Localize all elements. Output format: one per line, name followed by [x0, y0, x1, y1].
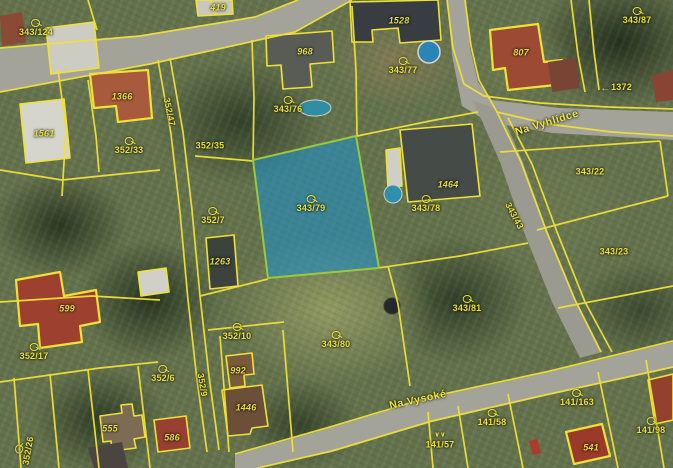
parcel-label-141-58[interactable]: 141/58 — [478, 409, 507, 427]
label-text: 343/22 — [576, 168, 605, 177]
label-text: 343/76 — [274, 105, 303, 114]
key-icon — [232, 323, 241, 331]
label-text: 992 — [230, 367, 246, 376]
building-label-1263[interactable]: 1263 — [210, 258, 231, 267]
parcel-label-343-76[interactable]: 343/76 — [274, 96, 303, 114]
building-label-1446[interactable]: 1446 — [236, 404, 257, 413]
parcel-label-352-35[interactable]: 352/35 — [196, 142, 225, 151]
key-icon — [159, 365, 168, 373]
building-label-992[interactable]: 992 — [230, 367, 246, 376]
parcel-label-352-17[interactable]: 352/17 — [20, 343, 49, 361]
parcel-label-352-10[interactable]: 352/10 — [223, 323, 252, 341]
label-text: 141/163 — [560, 398, 594, 407]
key-icon — [124, 137, 133, 145]
parcel-label-343-124[interactable]: 343/124 — [19, 19, 53, 37]
label-text: 352/10 — [223, 332, 252, 341]
parcel-label-141-163[interactable]: 141/163 — [560, 389, 594, 407]
parcel-label-343-79[interactable]: 343/79 — [297, 195, 326, 213]
label-text: 1263 — [210, 258, 231, 267]
building-label-555[interactable]: 555 — [102, 425, 118, 434]
label-text: 343/77 — [389, 66, 418, 75]
building-label-599[interactable]: 599 — [59, 305, 75, 314]
building-label-586[interactable]: 586 — [164, 434, 180, 443]
cadastral-map[interactable]: 343/1244199681528343/76343/77807343/8713… — [0, 0, 673, 468]
key-icon — [573, 389, 582, 397]
label-text: 1464 — [438, 181, 459, 190]
parcel-label-352-33[interactable]: 352/33 — [115, 137, 144, 155]
label-text: 1528 — [389, 17, 410, 26]
label-text: 555 — [102, 425, 118, 434]
label-text: 1366 — [112, 93, 133, 102]
parcel-label-141-98[interactable]: 141/98 — [637, 417, 666, 435]
parcel-label-343-80[interactable]: 343/80 — [322, 331, 351, 349]
label-text: 352/6 — [151, 374, 175, 383]
parcel-label-141-57[interactable]: 141/57 — [426, 425, 455, 450]
label-text: 141/57 — [426, 441, 455, 450]
key-icon — [632, 7, 641, 15]
key-icon — [646, 417, 655, 425]
building-label-968[interactable]: 968 — [297, 48, 313, 57]
parcel-label-343-78[interactable]: 343/78 — [412, 195, 441, 213]
label-text: 343/81 — [453, 304, 482, 313]
parcel-label-343-81[interactable]: 343/81 — [453, 295, 482, 313]
label-text: 1446 — [236, 404, 257, 413]
key-icon — [398, 57, 407, 65]
parcel-label-343-23[interactable]: 343/23 — [600, 248, 629, 257]
building-label-419[interactable]: 419 — [210, 4, 226, 13]
label-text: 343/78 — [412, 204, 441, 213]
parcel-label-343-87[interactable]: 343/87 — [623, 7, 652, 25]
key-icon — [421, 195, 430, 203]
key-icon — [283, 96, 292, 104]
parcel-label-1372[interactable]: 1372 — [600, 79, 632, 95]
label-text: 352/35 — [196, 142, 225, 151]
label-text: 352/17 — [20, 352, 49, 361]
key-icon — [209, 207, 218, 215]
scrub-icon — [434, 425, 445, 441]
building-label-1561[interactable]: 1561 — [34, 130, 55, 139]
arrow-left-icon — [600, 79, 610, 95]
parcel-label-343-77[interactable]: 343/77 — [389, 57, 418, 75]
key-icon — [487, 409, 496, 417]
label-text: 968 — [297, 48, 313, 57]
label-text: 141/58 — [478, 418, 507, 427]
label-text: 343/80 — [322, 340, 351, 349]
label-text: 352/33 — [115, 146, 144, 155]
building-label-1464[interactable]: 1464 — [438, 181, 459, 190]
building-label-1366[interactable]: 1366 — [112, 93, 133, 102]
label-text: 352/7 — [201, 216, 225, 225]
building-label-1528[interactable]: 1528 — [389, 17, 410, 26]
key-icon — [306, 195, 315, 203]
label-text: 419 — [210, 4, 226, 13]
parcel-label-343-22[interactable]: 343/22 — [576, 168, 605, 177]
key-icon — [462, 295, 471, 303]
key-icon — [32, 19, 41, 27]
key-icon — [331, 331, 340, 339]
label-text: 141/98 — [637, 426, 666, 435]
label-text: 343/124 — [19, 28, 53, 37]
building-label-541[interactable]: 541 — [583, 444, 599, 453]
label-text: 343/87 — [623, 16, 652, 25]
parcel-label-352-7[interactable]: 352/7 — [201, 207, 225, 225]
building-label-807[interactable]: 807 — [513, 49, 529, 58]
key-icon — [29, 343, 38, 351]
label-text: 1561 — [34, 130, 55, 139]
label-text: 807 — [513, 49, 529, 58]
label-text: 586 — [164, 434, 180, 443]
label-text: 541 — [583, 444, 599, 453]
label-text: 343/23 — [600, 248, 629, 257]
parcel-label-352-6[interactable]: 352/6 — [151, 365, 175, 383]
label-text: 343/79 — [297, 204, 326, 213]
label-text: 1372 — [611, 83, 632, 92]
label-text: 599 — [59, 305, 75, 314]
